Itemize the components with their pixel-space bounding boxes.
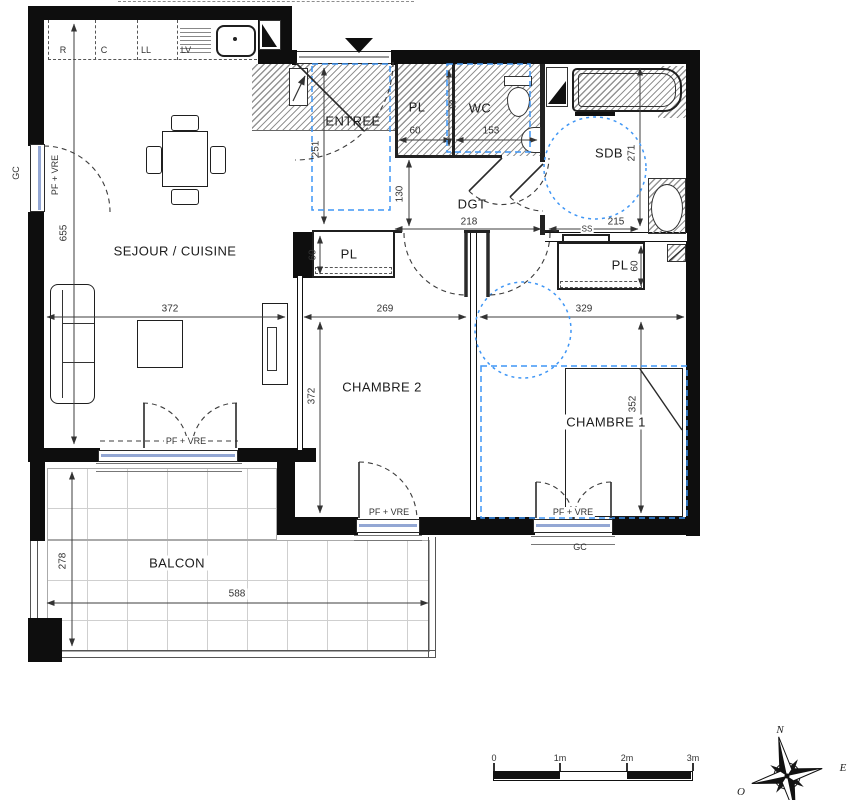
dining-chair-top: [171, 115, 199, 131]
dim-wc-width: 153: [483, 126, 500, 137]
toilet-tank: [504, 76, 532, 86]
dim-entree-height: 251: [311, 141, 322, 158]
kitchen-counter-divider: [95, 20, 96, 60]
scale-tick: [493, 763, 495, 771]
partition-pl-wc: [452, 64, 455, 158]
appliance-label-washer: LL: [141, 45, 151, 55]
compass-west-label: O: [737, 786, 745, 798]
sink-drain-dot: [233, 37, 237, 41]
closet-chambre2-rail: [315, 267, 392, 274]
window-label-left: PF + VRE: [50, 155, 60, 195]
dining-table: [162, 131, 208, 187]
balcony-railing-right: [428, 537, 436, 658]
dim-chambre2-width: 269: [377, 304, 394, 315]
window-chambre2-glazing: [359, 524, 417, 527]
room-label-sejour-cuisine: SEJOUR / CUISINE: [114, 244, 237, 259]
dim-chambre1-height: 352: [628, 396, 639, 413]
bathtub-apron: [575, 112, 615, 116]
compass-rose: [743, 729, 830, 800]
wall-left-balcony: [30, 453, 45, 541]
dining-chair-bottom: [171, 189, 199, 205]
wall-top: [38, 6, 292, 20]
dining-chair-left: [146, 146, 162, 174]
room-label-pl-entree: PL: [409, 100, 426, 115]
window-label-chambre1: PF + VRE: [551, 507, 595, 517]
closet-chambre1-rail: [560, 281, 642, 288]
scale-tick: [626, 763, 628, 771]
window-label-chambre2: PF + VRE: [367, 507, 411, 517]
wall-right: [686, 50, 700, 536]
dim-pl-chambre2-depth: 60: [308, 249, 319, 260]
dim-wc-clearance: 90: [449, 100, 458, 109]
wall-left-lower: [28, 212, 44, 462]
duct-box-sdb: [546, 67, 568, 107]
towel-rail-bench: [562, 234, 610, 243]
scale-label-1m: 1m: [554, 753, 567, 763]
dim-sdb-height: 271: [627, 145, 638, 162]
scale-bar-segment: [494, 772, 560, 779]
entree-hatch-edge: [252, 130, 395, 131]
entrance-jamb-left: [292, 50, 297, 65]
dim-sejour-width: 372: [162, 304, 179, 315]
appliance-label-cooker: C: [101, 45, 108, 55]
gc-label-bottom: GC: [573, 542, 587, 552]
entrance-jamb-right: [391, 50, 396, 65]
dim-dgt-width: 218: [461, 217, 478, 228]
wall-chambre2-bottom-right: [419, 517, 535, 535]
coffee-table: [137, 320, 183, 368]
dim-balcon-width: 588: [227, 589, 248, 600]
window-chambre1-glazing: [536, 524, 610, 527]
room-label-sdb: SDB: [595, 146, 623, 161]
bathtub-inner: [578, 73, 676, 107]
entrance-door-line: [299, 56, 389, 58]
sill-chambre2: [354, 535, 422, 541]
appliance-label-dishwasher: LV: [181, 45, 191, 55]
wall-chambre2-bottom-left: [277, 517, 358, 535]
room-label-pl-chambre1: PL: [612, 258, 629, 273]
dim-sdb-width: 215: [608, 217, 625, 228]
kitchen-sink: [216, 25, 256, 57]
scale-tick: [559, 763, 561, 771]
wall-left-upper: [28, 6, 44, 146]
kitchen-counter-divider: [177, 20, 178, 60]
bed: [565, 368, 683, 517]
window-sejour-left-glazing: [38, 146, 41, 210]
dim-sejour-height: 655: [59, 225, 70, 242]
dim-pl-entree-width: 60: [409, 126, 420, 137]
partition-pl-entree-left: [395, 64, 398, 158]
towel-rail-label: SS: [581, 225, 594, 234]
wall-sejour-bottom-left: [28, 448, 100, 462]
dim-chambre1-width: 329: [576, 304, 593, 315]
scale-bar: [493, 771, 693, 781]
radiator-entree: [289, 68, 308, 106]
washbasin: [651, 184, 683, 232]
wall-top-right: [393, 50, 700, 64]
compass-north-label: N: [776, 724, 783, 736]
scale-tick: [692, 763, 694, 771]
scale-label-0: 0: [491, 753, 496, 763]
room-label-pl-chambre2: PL: [341, 247, 358, 262]
wc-corner-basin: [521, 127, 541, 153]
partition-chambre1-chambre2: [470, 233, 477, 520]
scale-label-2m: 2m: [621, 753, 634, 763]
partition-sejour-chambre2: [297, 276, 303, 450]
wall-balcony-corner: [28, 618, 62, 662]
wall-chambre1-bottom-right: [612, 517, 700, 535]
room-label-balcon: BALCON: [146, 556, 208, 571]
partition-dgt-center-post: [464, 230, 490, 233]
room-label-dgt: DGT: [458, 197, 487, 212]
sofa-cushion-line: [62, 323, 94, 324]
dim-dgt-height: 130: [395, 186, 406, 203]
scale-bar-segment: [627, 772, 691, 779]
balcony-railing-bottom: [30, 650, 436, 658]
sill-sejour: [96, 463, 242, 472]
dim-chambre2-height: 372: [307, 388, 318, 405]
room-label-chambre1: CHAMBRE 1: [564, 415, 647, 430]
scale-label-3m: 3m: [687, 753, 700, 763]
window-sejour-south-glazing: [101, 454, 235, 457]
corner-unit-chambre1: [667, 244, 686, 262]
room-label-chambre2: CHAMBRE 2: [342, 380, 421, 395]
dim-pl-chambre1-depth: 60: [630, 260, 641, 271]
dim-balcon-height: 278: [58, 553, 69, 570]
tv-stand-inner: [267, 327, 277, 371]
floor-plan: R C LL LV: [0, 0, 857, 800]
sofa-cushion-line: [62, 362, 94, 363]
partition-pl-wc-bottom: [395, 155, 502, 158]
window-label-sejour: PF + VRE: [164, 436, 208, 446]
room-label-entree: ENTREE: [325, 114, 380, 129]
wall-balcony-chambre2: [277, 453, 295, 519]
neighbor-outline-dashed: [118, 1, 414, 2]
gc-label-left: GC: [11, 166, 21, 180]
sofa: [50, 284, 95, 404]
sofa-back-line: [62, 290, 63, 398]
dining-chair-right: [210, 146, 226, 174]
kitchen-counter-divider: [137, 20, 138, 60]
compass-east-label: E: [840, 762, 847, 774]
appliance-label-fridge: R: [60, 45, 67, 55]
duct-box-kitchen: [259, 20, 281, 50]
balcony-tiles-upper: [47, 468, 277, 540]
room-label-wc: WC: [469, 101, 491, 116]
